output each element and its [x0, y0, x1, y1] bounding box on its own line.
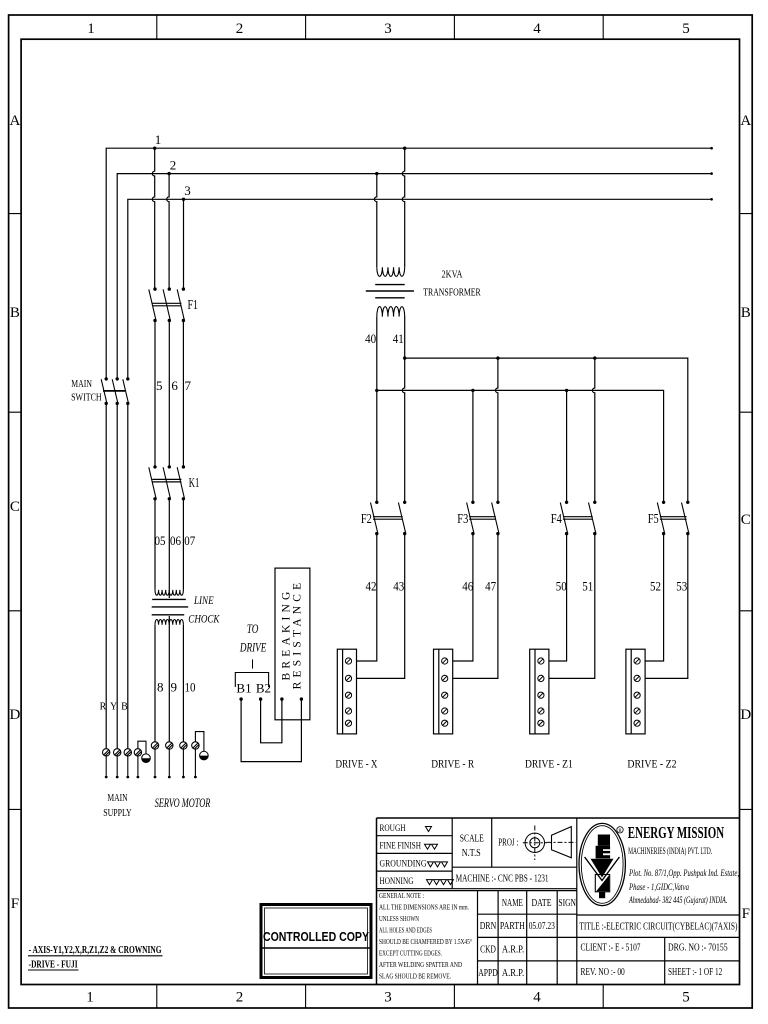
svg-text:ALL THE DIMENSIONS ARE IN mm.: ALL THE DIMENSIONS ARE IN mm. [379, 904, 469, 912]
svg-text:7: 7 [185, 378, 192, 393]
svg-text:05.07.23: 05.07.23 [529, 921, 555, 932]
svg-text:10: 10 [185, 680, 196, 695]
svg-text:PARTH: PARTH [500, 921, 525, 932]
svg-text:N.T.S: N.T.S [462, 848, 481, 859]
svg-text:APPD: APPD [478, 968, 498, 979]
svg-text:R: R [100, 702, 107, 713]
svg-text:Plot. No. 87/1,Opp. Pushpak In: Plot. No. 87/1,Opp. Pushpak Ind. Estate, [628, 869, 739, 879]
svg-text:EXCEPT CUTTING EDGES.: EXCEPT CUTTING EDGES. [379, 950, 442, 958]
svg-text:F3: F3 [457, 512, 468, 527]
svg-text:CKD: CKD [480, 945, 496, 956]
svg-text:06: 06 [170, 533, 181, 548]
svg-text:LINE: LINE [193, 593, 214, 607]
svg-text:F2: F2 [361, 512, 372, 527]
svg-text:F1: F1 [188, 298, 199, 313]
svg-text:Phase - 1,GIDC,Vatva: Phase - 1,GIDC,Vatva [628, 883, 689, 893]
svg-text:ENERGY MISSION: ENERGY MISSION [628, 823, 725, 842]
svg-text:REV. NO :- 00: REV. NO :- 00 [581, 967, 625, 978]
svg-text:MACHINERIES (INDIA) PVT. LTD.: MACHINERIES (INDIA) PVT. LTD. [628, 846, 712, 856]
svg-text:-DRIVE - FUJI: -DRIVE - FUJI [29, 960, 78, 971]
svg-text:5: 5 [682, 990, 690, 1006]
svg-text:SLAG SHOULD BE REMOVE.: SLAG SHOULD BE REMOVE. [379, 973, 451, 981]
svg-text:51: 51 [582, 579, 593, 594]
svg-text:F5: F5 [648, 512, 659, 527]
svg-text:R: R [618, 829, 622, 834]
svg-text:5: 5 [682, 21, 690, 37]
svg-text:1: 1 [155, 132, 162, 147]
svg-text:SCALE: SCALE [460, 834, 484, 845]
svg-text:B: B [121, 702, 128, 713]
svg-text:1: 1 [87, 21, 95, 37]
svg-text:B2: B2 [256, 681, 271, 696]
svg-text:2: 2 [236, 21, 244, 37]
svg-text:UNLESS SHOWN: UNLESS SHOWN [379, 915, 420, 923]
svg-text:A.R.P.: A.R.P. [502, 945, 524, 956]
svg-text:52: 52 [650, 579, 661, 594]
svg-text:05: 05 [155, 533, 166, 548]
svg-text:3: 3 [384, 21, 392, 37]
svg-text:SIGN: SIGN [558, 898, 576, 909]
svg-text:MAIN: MAIN [71, 379, 92, 390]
svg-text:ROUGH: ROUGH [380, 824, 406, 834]
svg-text:C: C [741, 512, 751, 528]
svg-text:GROUNDING: GROUNDING [380, 859, 427, 869]
svg-text:SHEET :- 1 OF 12: SHEET :- 1 OF 12 [668, 967, 722, 978]
svg-text:D: D [740, 707, 751, 723]
svg-text:2KVA: 2KVA [442, 269, 463, 281]
svg-text:SERVO MOTOR: SERVO MOTOR [155, 796, 211, 810]
svg-text:DRN: DRN [480, 921, 496, 932]
svg-text:Ahmedabad- 382 445 (Gujarat) I: Ahmedabad- 382 445 (Gujarat) INDIA. [628, 895, 727, 906]
svg-text:TITLE :-ELECTRIC CIRCUIT(CYBEL: TITLE :-ELECTRIC CIRCUIT(CYBELAC)(7AXIS) [579, 921, 737, 933]
svg-text:43: 43 [393, 579, 404, 594]
svg-text:FINE FINISH: FINE FINISH [380, 842, 422, 852]
svg-text:AFTER WELDING SPATTER AND: AFTER WELDING SPATTER AND [379, 961, 462, 969]
svg-text:9: 9 [171, 680, 178, 695]
svg-text:4: 4 [533, 990, 541, 1006]
svg-text:41: 41 [393, 331, 404, 346]
svg-text:F: F [742, 906, 750, 922]
svg-text:DRIVE - R: DRIVE - R [431, 759, 474, 771]
svg-text:C: C [10, 499, 20, 515]
svg-text:MACHINE :- CNC PBS - 1231: MACHINE :- CNC PBS - 1231 [456, 874, 549, 885]
svg-text:CONTROLLED COPY: CONTROLLED COPY [263, 929, 369, 944]
svg-text:3: 3 [384, 990, 392, 1006]
svg-text:1: 1 [86, 990, 94, 1006]
svg-text:PROJ :: PROJ : [498, 838, 518, 849]
svg-text:D: D [9, 707, 20, 723]
svg-text:6: 6 [171, 378, 178, 393]
svg-text:DRIVE: DRIVE [239, 641, 266, 655]
svg-text:MAIN: MAIN [107, 793, 128, 804]
svg-text:GENERAL NOTE :: GENERAL NOTE : [379, 892, 424, 900]
svg-text:07: 07 [184, 533, 195, 548]
svg-text:5: 5 [156, 378, 163, 393]
svg-text:A.R.P.: A.R.P. [502, 968, 524, 979]
svg-text:HONNING: HONNING [380, 877, 414, 887]
svg-text:B: B [741, 305, 751, 321]
svg-text:4: 4 [533, 21, 541, 37]
svg-text:42: 42 [366, 579, 377, 594]
svg-text:DRIVE - Z2: DRIVE - Z2 [627, 759, 676, 771]
svg-text:46: 46 [462, 579, 473, 594]
svg-text:ALL HOLES AND EDGES: ALL HOLES AND EDGES [379, 927, 432, 935]
svg-text:CHOCK: CHOCK [188, 612, 220, 626]
svg-text:53: 53 [676, 579, 687, 594]
svg-text:B: B [10, 305, 20, 321]
svg-text:K1: K1 [189, 476, 200, 491]
svg-text:2: 2 [236, 990, 244, 1006]
svg-text:3: 3 [184, 183, 191, 198]
svg-text:47: 47 [485, 579, 496, 594]
svg-text:TRANSFORMER: TRANSFORMER [423, 287, 481, 299]
svg-text:RESISTANCE: RESISTANCE [292, 579, 304, 690]
svg-text:NAME: NAME [502, 898, 523, 909]
svg-text:A: A [740, 113, 751, 129]
svg-text:2: 2 [170, 158, 177, 173]
svg-text:SWITCH: SWITCH [71, 393, 102, 404]
svg-text:A: A [9, 113, 20, 129]
svg-text:DATE: DATE [532, 898, 552, 909]
svg-text:F: F [11, 896, 19, 912]
svg-text:- AXIS-Y1,Y2,X,R,Z1,Z2 & CROWN: - AXIS-Y1,Y2,X,R,Z1,Z2 & CROWNING [29, 945, 162, 956]
svg-text:B1: B1 [236, 681, 251, 696]
svg-text:SUPPLY: SUPPLY [103, 808, 132, 819]
svg-text:DRIVE - X: DRIVE - X [336, 759, 379, 771]
svg-text:40: 40 [365, 331, 376, 346]
svg-text:8: 8 [157, 680, 164, 695]
svg-text:CLIENT :- E - 5107: CLIENT :- E - 5107 [581, 943, 641, 954]
svg-text:F4: F4 [551, 512, 562, 527]
svg-text:SHOULD BE CHAMFERED BY 1.5X45°: SHOULD BE CHAMFERED BY 1.5X45° [379, 938, 472, 946]
svg-text:50: 50 [556, 579, 567, 594]
svg-text:DRG. NO :- 70155: DRG. NO :- 70155 [668, 943, 728, 954]
svg-text:Y: Y [110, 702, 117, 713]
svg-text:DRIVE - Z1: DRIVE - Z1 [525, 759, 573, 771]
svg-text:TO: TO [247, 622, 259, 636]
